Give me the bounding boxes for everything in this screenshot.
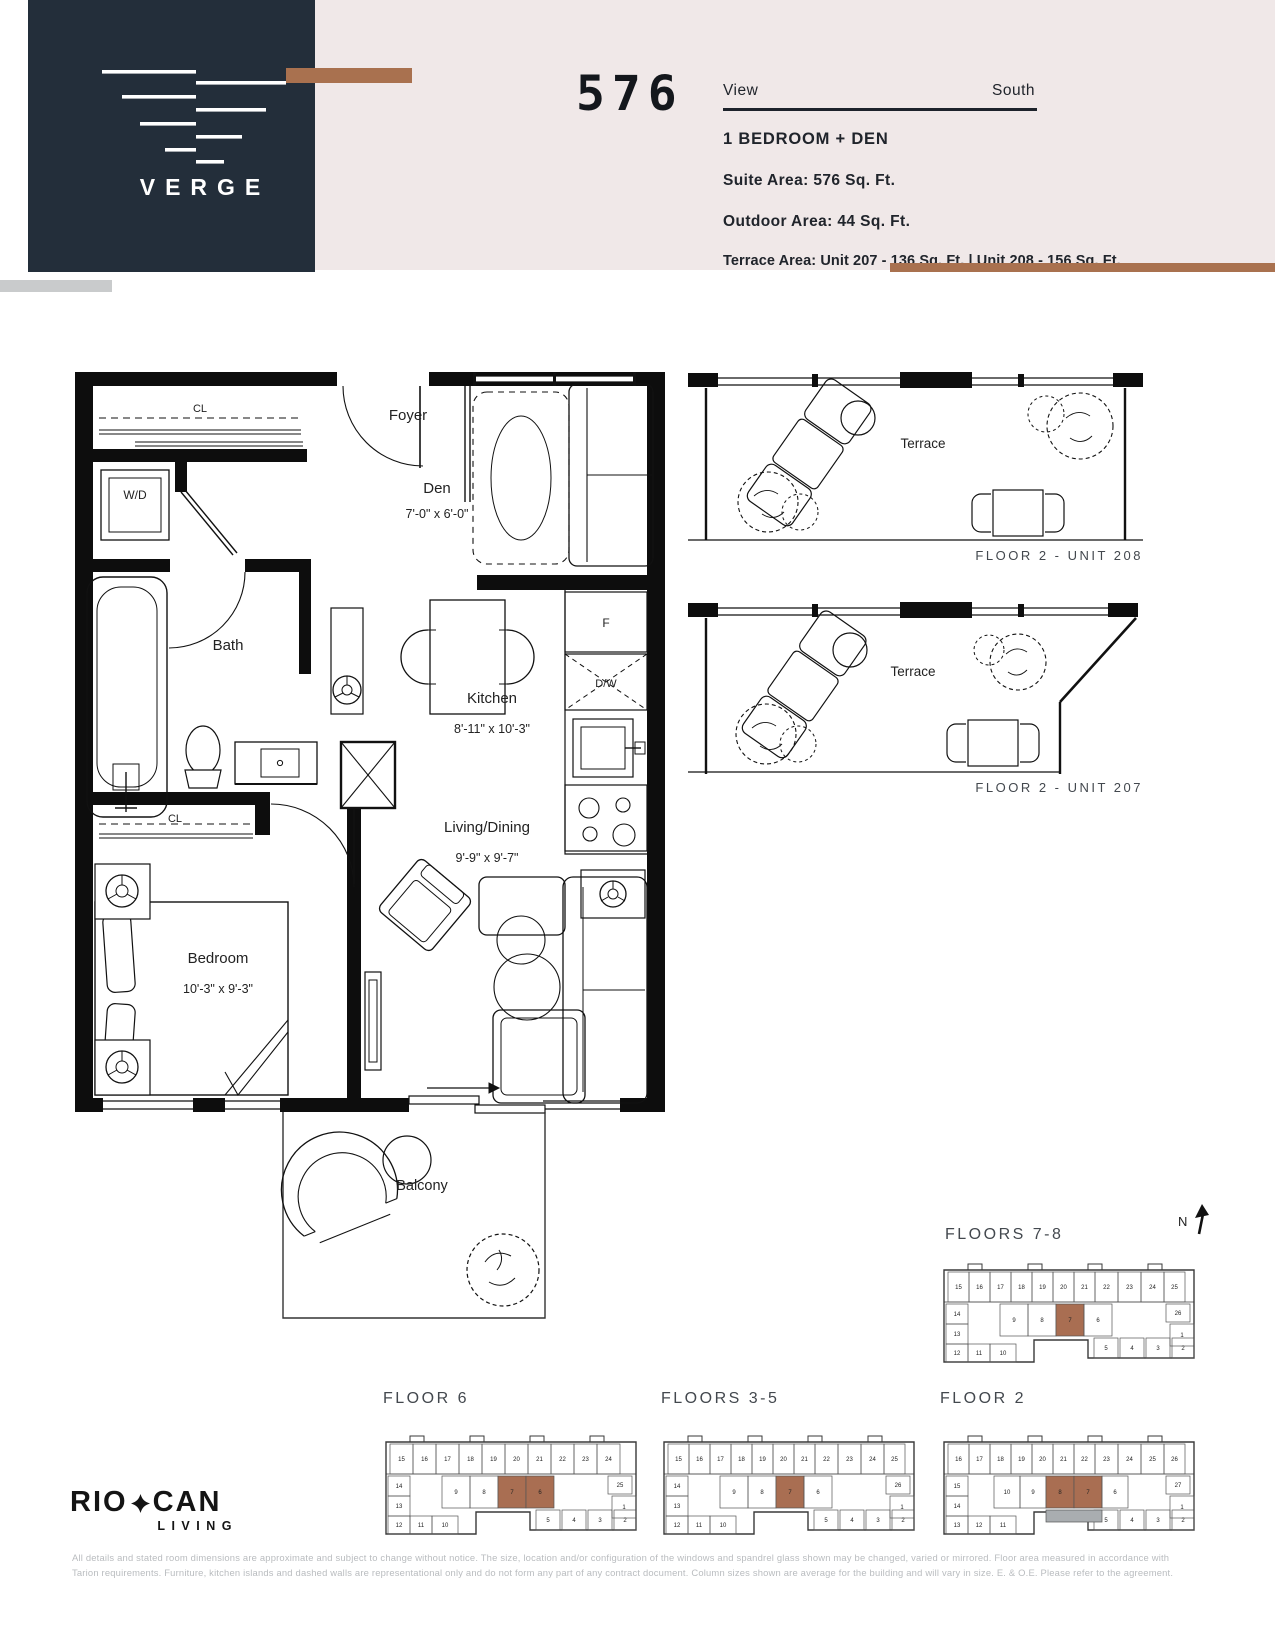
terrace-dining-set (972, 490, 1064, 536)
room-label-living: Living/Dining (444, 819, 530, 836)
sofa (479, 877, 647, 1103)
keyplan-unit-number: 19 (1039, 1285, 1046, 1291)
terrace-label-208: Terrace (900, 436, 945, 451)
bedroom-closet (99, 824, 253, 838)
riocan-text-right: CAN (153, 1486, 222, 1519)
balcony-chair (264, 1115, 409, 1251)
balcony-outline (283, 1112, 545, 1318)
pantry-cabinet (331, 608, 363, 714)
keyplan-unit-number: 18 (997, 1457, 1004, 1463)
keyplan-unit-number: 20 (780, 1457, 787, 1463)
room-label-balcony: Balcony (396, 1178, 448, 1194)
keyplan-unit-number: 27 (1175, 1483, 1182, 1489)
keyplan-unit-number: 17 (444, 1457, 451, 1463)
room-label-wd: W/D (123, 488, 147, 502)
foyer-closet (99, 418, 303, 446)
keyplan-unit-number: 25 (1171, 1285, 1178, 1291)
keyplan-unit-number: 13 (954, 1332, 961, 1338)
keyplan-title-floors-7-8: FLOORS 7-8 (945, 1226, 1063, 1244)
terrace-lounge (745, 376, 874, 528)
view-row: View South (723, 82, 1035, 100)
keyplan-unit-number: 14 (396, 1484, 403, 1490)
view-label: View (723, 82, 758, 100)
keyplan-floors-3-5: 1516171819202122232425141398762611211105… (658, 1418, 920, 1536)
keyplan-unit-number: 18 (467, 1457, 474, 1463)
dishwasher-label: D/W (595, 678, 617, 690)
suite-area: Suite Area: 576 Sq. Ft. (723, 172, 1153, 190)
room-label-kitchen: Kitchen (467, 690, 517, 707)
bedroom-fixture-bottom (95, 1040, 150, 1095)
room-dim-bedroom: 10'-3" x 9'-3" (183, 982, 253, 996)
keyplan-unit-number: 19 (1018, 1457, 1025, 1463)
unit-number: 576 (576, 66, 684, 122)
disclaimer-line-1: All details and stated room dimensions a… (72, 1550, 1207, 1565)
keyplan-unit-number: 19 (759, 1457, 766, 1463)
terrace-plant-right (974, 634, 1046, 690)
keyplan-title-floor-2: FLOOR 2 (940, 1390, 1026, 1408)
fridge-label: F (602, 616, 609, 630)
balcony-arrow-icon (427, 1083, 499, 1093)
keyplan-unit-number: 21 (801, 1457, 808, 1463)
keyplan-unit-number: 15 (675, 1457, 682, 1463)
keyplan-unit-number: 11 (1000, 1523, 1007, 1529)
terrace-caption-207: FLOOR 2 - UNIT 207 (823, 780, 1143, 795)
terrace-caption-208: FLOOR 2 - UNIT 208 (823, 548, 1143, 563)
room-dim-den: 7'-0" x 6'-0" (406, 507, 469, 521)
keyplan-unit-number: 15 (954, 1484, 961, 1490)
keyplan-title-floor-6: FLOOR 6 (383, 1390, 469, 1408)
keyplan-unit-number: 26 (1171, 1457, 1178, 1463)
keyplan-unit-number: 25 (617, 1483, 624, 1489)
keyplan-unit-number: 19 (490, 1457, 497, 1463)
balcony-table (383, 1136, 431, 1184)
keyplan-unit-number: 11 (976, 1351, 983, 1357)
keyplan-unit-number: 10 (442, 1523, 449, 1529)
keyplan-unit-number: 23 (846, 1457, 853, 1463)
keyplan-unit-number: 24 (605, 1457, 612, 1463)
riocan-text-left: RIO (70, 1486, 128, 1519)
copper-accent-bar-top (286, 68, 412, 83)
keyplan-unit-number: 15 (955, 1285, 962, 1291)
keyplan-floor-2: 1617181920212223242526151410987627113121… (938, 1418, 1200, 1536)
view-rule (723, 108, 1037, 111)
keyplan-unit-number: 24 (1126, 1457, 1133, 1463)
riocan-sub-label: LIVING (70, 1519, 238, 1533)
den-rug (473, 392, 569, 564)
bathtub (87, 577, 167, 817)
keyplan-floors-7-8: 1516171819202122232425141398762611211105… (938, 1246, 1200, 1364)
terrace-label-207: Terrace (890, 664, 935, 679)
suite-info: View South 1 BEDROOM + DEN Suite Area: 5… (723, 82, 1153, 269)
keyplan-unit-number: 22 (559, 1457, 566, 1463)
keyplan-unit-number: 17 (976, 1457, 983, 1463)
closet-label-top: CL (193, 403, 207, 415)
keyplan-unit-number: 22 (1081, 1457, 1088, 1463)
brand-name: VERGE (124, 174, 276, 201)
keyplan-unit-number: 13 (396, 1504, 403, 1510)
vanity-sink (235, 742, 317, 784)
keyplan-unit-number: 15 (398, 1457, 405, 1463)
terrace-lounge (740, 608, 869, 760)
balcony-sliding-door (409, 1096, 545, 1113)
keyplan-unit-number: 23 (1126, 1285, 1133, 1291)
keyplan-unit-number: 21 (1081, 1285, 1088, 1291)
keyplan-unit-number: 25 (891, 1457, 898, 1463)
suite-type: 1 BEDROOM + DEN (723, 130, 1153, 149)
keyplan-unit-number: 17 (997, 1285, 1004, 1291)
view-value: South (992, 82, 1035, 100)
riocan-star-icon (131, 1494, 150, 1513)
compass: N (1176, 1202, 1216, 1238)
keyplan-unit-number: 18 (738, 1457, 745, 1463)
keyplan-unit-number: 22 (823, 1457, 830, 1463)
keyplan-unit-number: 16 (421, 1457, 428, 1463)
keyplan-unit-number: 13 (954, 1523, 961, 1529)
terrace-dining-set (947, 720, 1039, 766)
keyplan-unit-number: 23 (582, 1457, 589, 1463)
keyplan-unit-number: 20 (1060, 1285, 1067, 1291)
armchair (377, 857, 473, 953)
room-label-bedroom: Bedroom (188, 950, 249, 967)
verge-logo-icon (78, 60, 298, 170)
terrace-plan-unit-208: Terrace (688, 372, 1143, 548)
keyplan-unit-number: 12 (976, 1523, 983, 1529)
keyplan-unit-number: 17 (717, 1457, 724, 1463)
keyplan-unit-number: 21 (1060, 1457, 1067, 1463)
room-dim-kitchen: 8'-11" x 10'-3" (454, 722, 530, 736)
keyplan-unit-number: 20 (513, 1457, 520, 1463)
keyplan-unit-number: 24 (869, 1457, 876, 1463)
tv-console (365, 972, 381, 1070)
bedroom-fixture-top (95, 864, 150, 919)
entry-door (343, 386, 423, 468)
keyplan-unit-number: 10 (1004, 1490, 1011, 1496)
keyplan-unit-number: 14 (954, 1312, 961, 1318)
keyplan-unit-number: 10 (1000, 1351, 1007, 1357)
keyplan-unit-number: 21 (536, 1457, 543, 1463)
room-label-den: Den (423, 480, 451, 497)
riocan-logo: RIO CAN LIVING (70, 1486, 238, 1533)
keyplan-unit-number: 14 (674, 1484, 681, 1490)
bedroom-door (271, 804, 354, 887)
copper-accent-bar-bottom (890, 263, 1275, 272)
room-dim-living: 9'-9" x 9'-7" (456, 851, 519, 865)
gray-strip (0, 280, 112, 292)
laundry-closet (101, 470, 237, 555)
keyplan-unit-number: 23 (1103, 1457, 1110, 1463)
keyplan-unit-number: 24 (1149, 1285, 1156, 1291)
disclaimer-line-2: Tarion requirements. Furniture, kitchen … (72, 1565, 1207, 1580)
keyplan-unit-number: 22 (1103, 1285, 1110, 1291)
keyplan-terrace (1046, 1510, 1102, 1522)
keyplan-unit-number: 16 (976, 1285, 983, 1291)
keyplan-unit-number: 18 (1018, 1285, 1025, 1291)
room-label-foyer: Foyer (389, 407, 427, 424)
shaft (341, 742, 395, 808)
keyplan-unit-number: 12 (954, 1351, 961, 1357)
terrace-plant-right (1028, 393, 1113, 459)
den-daybed (569, 384, 653, 566)
keyplan-unit-number: 12 (674, 1523, 681, 1529)
room-label-bath: Bath (213, 637, 244, 654)
toilet (185, 726, 221, 788)
disclaimer: All details and stated room dimensions a… (72, 1550, 1207, 1580)
den-wall (465, 386, 470, 502)
closet-label-bedroom: CL (168, 813, 182, 825)
keyplan-unit-number: 11 (696, 1523, 703, 1529)
keyplan-unit-number: 16 (955, 1457, 962, 1463)
keyplan-unit-number: 10 (720, 1523, 727, 1529)
unit-floorplan: Foyer Den 7'-0" x 6'-0" W/D Bath Kitchen… (75, 372, 665, 1320)
keyplan-unit-number: 20 (1039, 1457, 1046, 1463)
north-arrow-icon: N (1176, 1202, 1216, 1238)
brand-panel: VERGE (28, 0, 315, 272)
keyplan-floor-6: 1516171819202122232414139876251121110543… (380, 1418, 642, 1536)
terrace-plan-unit-207: Terrace (688, 602, 1140, 780)
balcony-plant (467, 1234, 539, 1306)
keyplan-unit-number: 16 (696, 1457, 703, 1463)
keyplan-unit-number: 13 (674, 1504, 681, 1510)
keyplan-unit-number: 14 (954, 1504, 961, 1510)
keyplan-unit-number: 25 (1149, 1457, 1156, 1463)
compass-label: N (1178, 1214, 1187, 1229)
keyplan-unit-number: 26 (1175, 1311, 1182, 1317)
keyplan-unit-number: 11 (418, 1523, 425, 1529)
keyplan-unit-number: 26 (895, 1483, 902, 1489)
outdoor-area: Outdoor Area: 44 Sq. Ft. (723, 213, 1153, 231)
keyplan-title-floors-3-5: FLOORS 3-5 (661, 1390, 779, 1408)
keyplan-unit-number: 12 (396, 1523, 403, 1529)
